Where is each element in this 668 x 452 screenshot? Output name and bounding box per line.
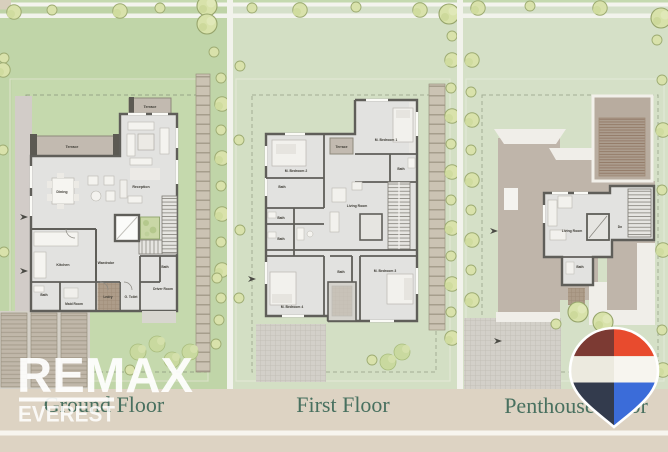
svg-text:Bath: Bath [337, 270, 344, 274]
svg-text:Maid Room: Maid Room [65, 302, 83, 306]
svg-text:REMAX: REMAX [17, 349, 193, 403]
svg-text:Kitchen: Kitchen [56, 263, 69, 267]
svg-text:Bath: Bath [40, 293, 47, 297]
svg-text:Living Room: Living Room [347, 204, 368, 208]
svg-text:Lndry: Lndry [103, 295, 112, 299]
svg-text:Wardrobe: Wardrobe [98, 261, 115, 265]
svg-text:First Floor: First Floor [296, 392, 390, 417]
svg-text:Living Room: Living Room [562, 229, 583, 233]
svg-text:M. Bedroom 3: M. Bedroom 3 [374, 269, 397, 273]
svg-text:G. Toilet: G. Toilet [125, 295, 139, 299]
svg-text:Terrace: Terrace [144, 105, 157, 109]
svg-text:M. Bedroom 2: M. Bedroom 2 [285, 169, 308, 173]
svg-text:Terrace: Terrace [335, 145, 347, 149]
svg-text:Bath: Bath [277, 216, 284, 220]
svg-text:Bath: Bath [278, 185, 285, 189]
svg-text:Reception: Reception [132, 185, 149, 189]
svg-text:Bath: Bath [161, 265, 168, 269]
svg-text:Dn: Dn [618, 225, 622, 229]
svg-text:M. Bedroom 4: M. Bedroom 4 [281, 305, 304, 309]
svg-text:Terrace: Terrace [66, 145, 79, 149]
svg-text:Dining: Dining [56, 190, 67, 194]
svg-text:Bath: Bath [576, 265, 583, 269]
svg-text:EVEREST: EVEREST [18, 402, 116, 427]
svg-text:Bath: Bath [277, 237, 284, 241]
svg-text:Driver Room: Driver Room [153, 287, 173, 291]
svg-text:Bath: Bath [397, 167, 404, 171]
svg-text:M. Bedroom 1: M. Bedroom 1 [375, 138, 398, 142]
